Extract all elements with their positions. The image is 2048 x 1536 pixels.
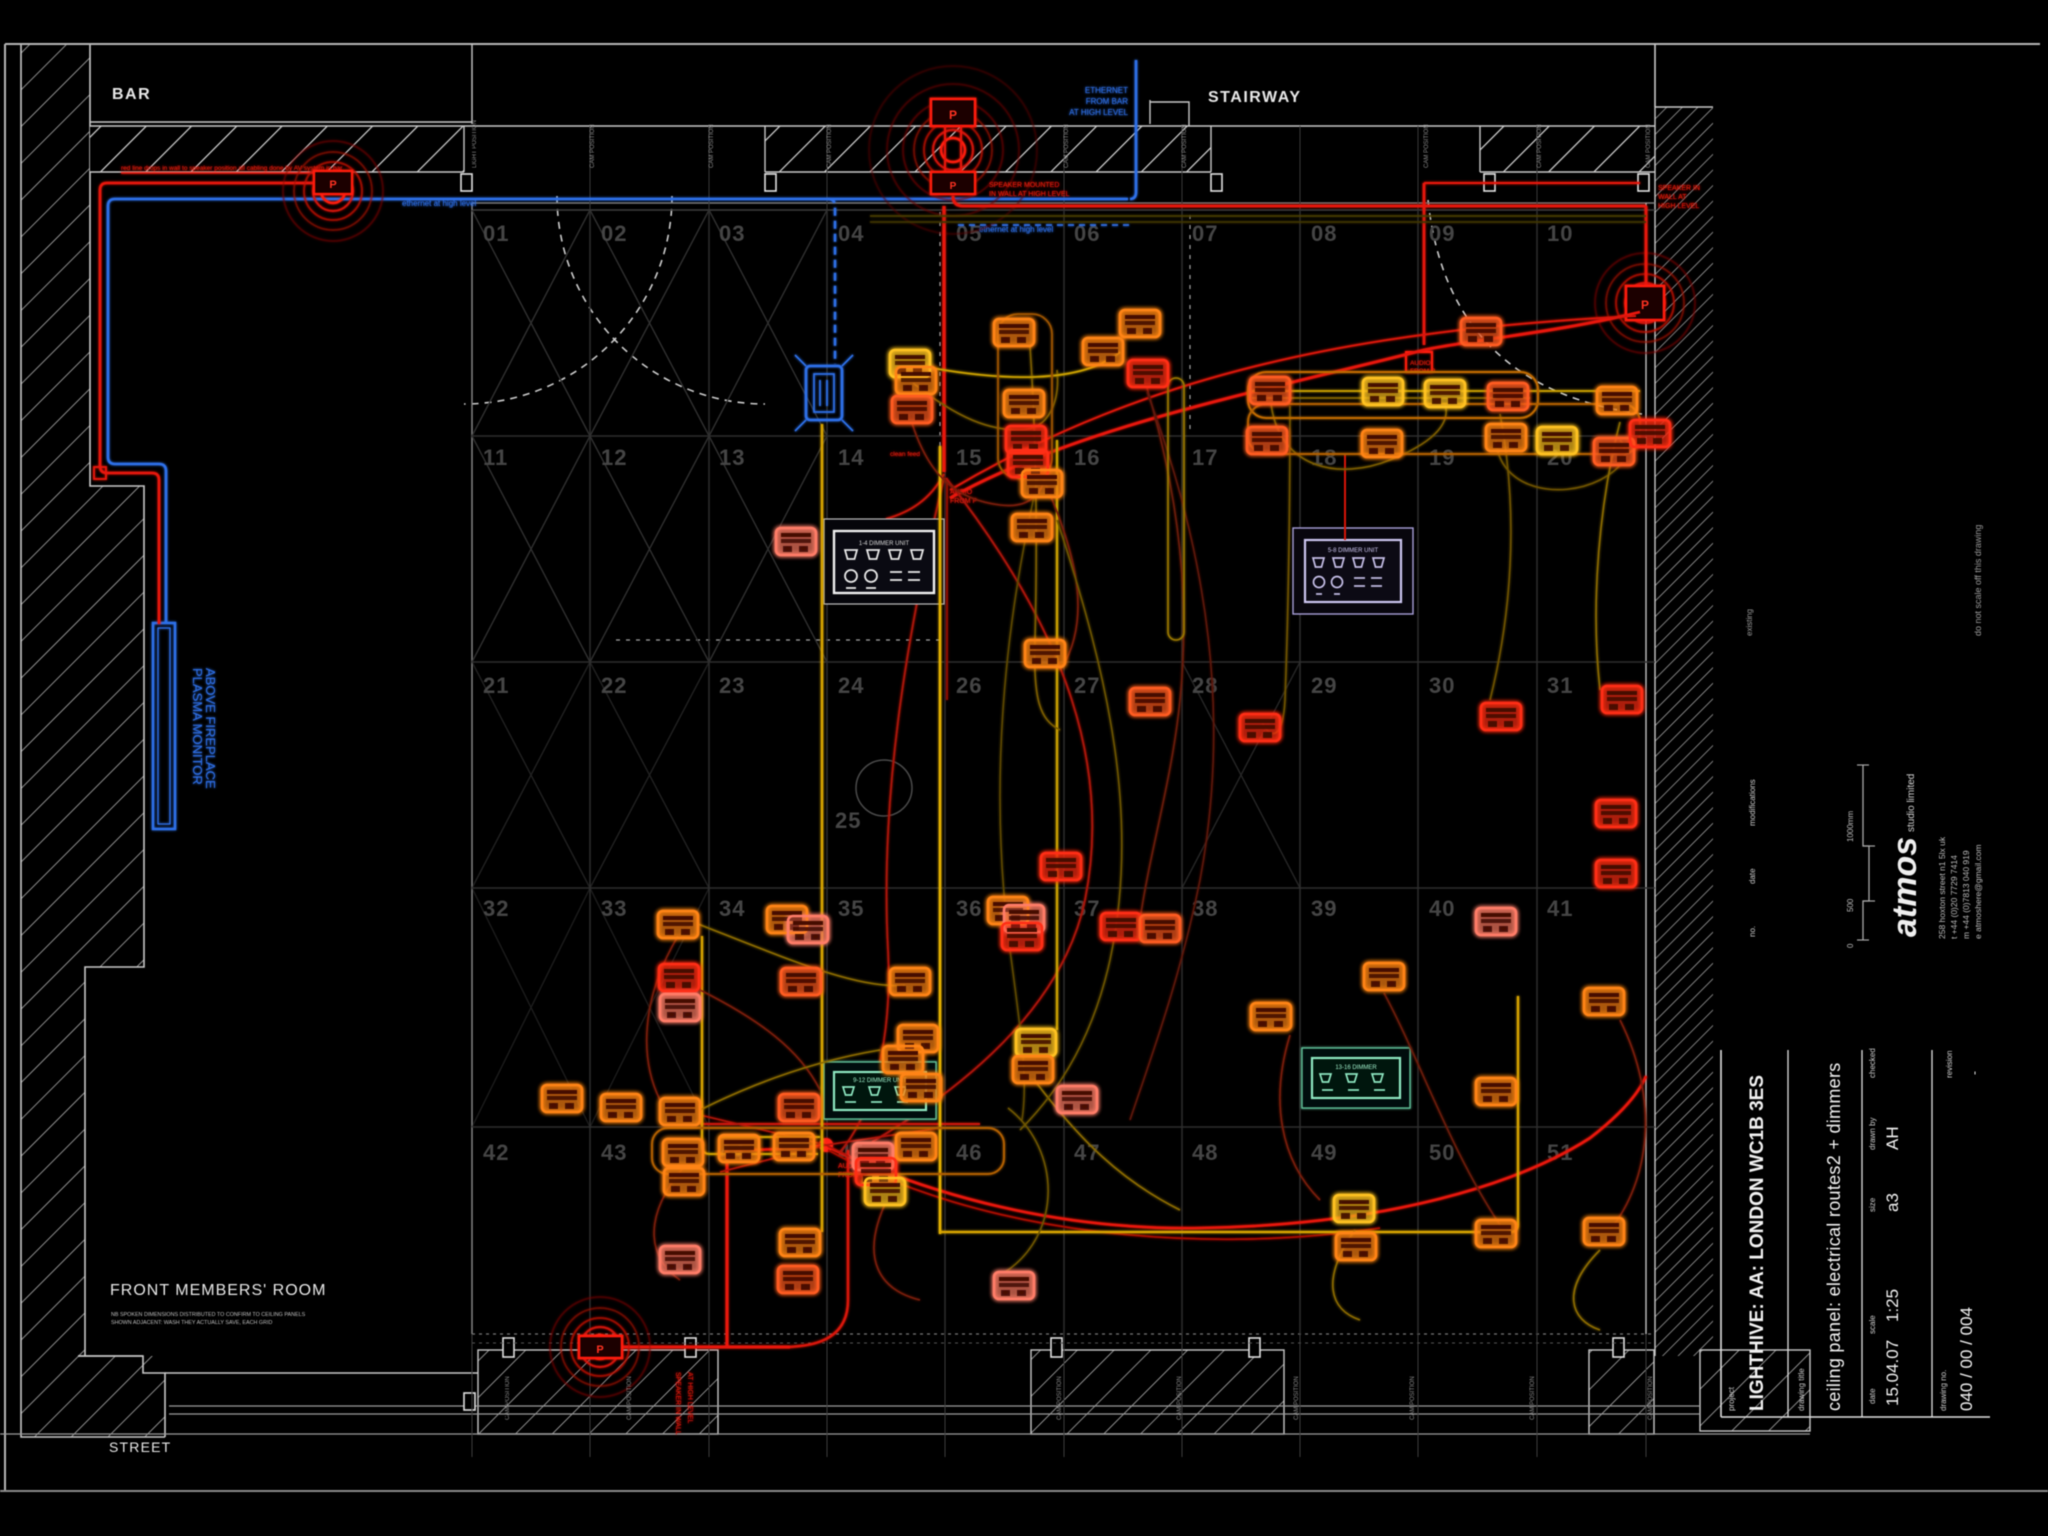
svg-text:e atmoshere@gmail.com: e atmoshere@gmail.com xyxy=(1973,844,1983,939)
svg-text:25: 25 xyxy=(835,808,861,833)
svg-text:09: 09 xyxy=(1429,221,1455,246)
svg-text:no.: no. xyxy=(1748,926,1757,937)
svg-text:m +44 (0)7813 040 919: m +44 (0)7813 040 919 xyxy=(1961,850,1971,939)
svg-text:SPEAKER MOUNTED: SPEAKER MOUNTED xyxy=(989,182,1059,189)
svg-text:CAM POSITION: CAM POSITION xyxy=(1424,124,1430,168)
svg-text:1-4 DIMMER UNIT: 1-4 DIMMER UNIT xyxy=(859,541,910,547)
svg-text:LIGHT POSITION: LIGHT POSITION xyxy=(472,120,478,168)
svg-text:HIGH LEVEL: HIGH LEVEL xyxy=(1658,203,1699,210)
svg-text:CAM POSITION: CAM POSITION xyxy=(1530,1376,1536,1420)
svg-text:10: 10 xyxy=(1547,221,1573,246)
svg-text:STREET: STREET xyxy=(109,1439,171,1455)
svg-text:CAM POSITION: CAM POSITION xyxy=(1064,124,1070,168)
svg-text:CAM POSITION: CAM POSITION xyxy=(709,124,715,168)
svg-text:revision: revision xyxy=(1945,1050,1954,1078)
svg-text:t +44 (0)20 7729 7414: t +44 (0)20 7729 7414 xyxy=(1949,855,1959,939)
svg-text:FROM BAR: FROM BAR xyxy=(1086,97,1128,106)
svg-text:37: 37 xyxy=(1074,896,1100,921)
svg-text:46: 46 xyxy=(956,1140,982,1165)
svg-text:project: project xyxy=(1727,1386,1736,1411)
svg-text:CAM POSITION: CAM POSITION xyxy=(827,124,833,168)
svg-text:43: 43 xyxy=(601,1140,627,1165)
svg-text:atmos: atmos xyxy=(1886,837,1924,937)
svg-text:ceiling panel: electrical rout: ceiling panel: electrical routes2 + dimm… xyxy=(1824,1062,1844,1411)
svg-text:14: 14 xyxy=(838,445,864,470)
svg-text:IN WALL AT HIGH LEVEL: IN WALL AT HIGH LEVEL xyxy=(989,191,1070,198)
svg-text:48: 48 xyxy=(1192,1140,1218,1165)
svg-text:ETHERNET: ETHERNET xyxy=(1085,86,1128,95)
svg-text:21: 21 xyxy=(483,673,509,698)
svg-text:33: 33 xyxy=(601,896,627,921)
svg-text:drawing title: drawing title xyxy=(1797,1368,1806,1411)
svg-text:FRONT MEMBERS' ROOM: FRONT MEMBERS' ROOM xyxy=(110,1282,326,1299)
svg-text:CAM POSITION: CAM POSITION xyxy=(1294,1376,1300,1420)
svg-text:CAM POSITION: CAM POSITION xyxy=(1537,124,1543,168)
svg-text:ethernet at high level: ethernet at high level xyxy=(402,199,476,208)
svg-text:checked: checked xyxy=(1868,1048,1877,1078)
svg-text:existing: existing xyxy=(1745,609,1754,636)
svg-text:CAM POSITION: CAM POSITION xyxy=(1177,1376,1183,1420)
svg-text:22: 22 xyxy=(601,673,627,698)
svg-text:30: 30 xyxy=(1429,673,1455,698)
svg-text:040 / 00 / 004: 040 / 00 / 004 xyxy=(1957,1307,1976,1411)
svg-text:CAM POSITION: CAM POSITION xyxy=(1182,124,1188,168)
svg-text:15.04.07: 15.04.07 xyxy=(1883,1340,1902,1406)
svg-text:CAM POSITION: CAM POSITION xyxy=(590,124,596,168)
svg-text:5-8 DIMMER UNIT: 5-8 DIMMER UNIT xyxy=(1328,548,1379,554)
svg-text:STAIRWAY: STAIRWAY xyxy=(1208,89,1302,106)
svg-text:19: 19 xyxy=(1429,445,1455,470)
svg-text:size: size xyxy=(1868,1197,1877,1212)
svg-text:13-16 DIMMER: 13-16 DIMMER xyxy=(1335,1065,1377,1071)
svg-text:29: 29 xyxy=(1311,673,1337,698)
svg-text:1:25: 1:25 xyxy=(1883,1289,1902,1322)
svg-text:02: 02 xyxy=(601,221,627,246)
svg-text:a3: a3 xyxy=(1883,1193,1902,1212)
svg-text:1000mm: 1000mm xyxy=(1846,811,1855,842)
svg-text:CAM POSITION: CAM POSITION xyxy=(1646,124,1652,168)
svg-text:SPEAKER IN: SPEAKER IN xyxy=(1658,185,1700,192)
svg-text:35: 35 xyxy=(838,896,864,921)
svg-text:CAM POSITION: CAM POSITION xyxy=(1410,1376,1416,1420)
svg-text:07: 07 xyxy=(1192,221,1218,246)
svg-text:9-12 DIMMER UNIT: 9-12 DIMMER UNIT xyxy=(853,1078,907,1084)
svg-text:04: 04 xyxy=(838,221,864,246)
svg-text:clean feed: clean feed xyxy=(890,451,920,458)
svg-text:P: P xyxy=(1641,298,1649,312)
svg-text:scale: scale xyxy=(1868,1315,1877,1334)
svg-text:41: 41 xyxy=(1547,896,1573,921)
svg-text:AT HIGH LEVEL: AT HIGH LEVEL xyxy=(686,1372,693,1424)
svg-text:P: P xyxy=(949,108,957,122)
svg-text:drawing no.: drawing no. xyxy=(1939,1370,1948,1411)
svg-text:P: P xyxy=(950,181,957,192)
svg-text:CAM POSITION: CAM POSITION xyxy=(1057,1376,1063,1420)
svg-text:PLASMA MONITOR: PLASMA MONITOR xyxy=(190,668,205,785)
svg-text:-: - xyxy=(1967,1071,1981,1075)
svg-text:01: 01 xyxy=(483,221,509,246)
svg-text:13: 13 xyxy=(719,445,745,470)
svg-text:11: 11 xyxy=(483,445,508,470)
svg-text:do not scale off this drawing: do not scale off this drawing xyxy=(1973,525,1983,636)
svg-text:date: date xyxy=(1748,868,1757,884)
svg-text:drawn by: drawn by xyxy=(1868,1118,1877,1150)
svg-text:LIGHTHIVE: AA: LONDON WC1B 3ES: LIGHTHIVE: AA: LONDON WC1B 3ES xyxy=(1747,1075,1768,1411)
svg-text:ABOVE FIREPLACE: ABOVE FIREPLACE xyxy=(203,668,218,789)
svg-text:modifications: modifications xyxy=(1748,779,1757,826)
svg-text:AH: AH xyxy=(1883,1126,1902,1150)
svg-text:36: 36 xyxy=(956,896,982,921)
svg-text:40: 40 xyxy=(1429,896,1455,921)
svg-text:39: 39 xyxy=(1311,896,1337,921)
svg-text:03: 03 xyxy=(719,221,745,246)
svg-text:12: 12 xyxy=(601,445,627,470)
svg-text:06: 06 xyxy=(1074,221,1100,246)
svg-text:32: 32 xyxy=(483,896,509,921)
svg-text:28: 28 xyxy=(1192,673,1218,698)
svg-text:studio limited: studio limited xyxy=(1906,774,1917,832)
svg-text:15: 15 xyxy=(956,445,982,470)
svg-text:34: 34 xyxy=(719,896,745,921)
svg-text:CAM POSITION: CAM POSITION xyxy=(1648,1376,1654,1420)
svg-text:BAR: BAR xyxy=(112,86,151,103)
svg-text:08: 08 xyxy=(1311,221,1337,246)
svg-text:258 hoxton street n1 5lx uk: 258 hoxton street n1 5lx uk xyxy=(1937,836,1947,939)
svg-text:23: 23 xyxy=(719,673,745,698)
svg-text:31: 31 xyxy=(1547,673,1573,698)
svg-text:CAM POSITION: CAM POSITION xyxy=(505,1376,511,1420)
svg-text:26: 26 xyxy=(956,673,982,698)
svg-text:16: 16 xyxy=(1074,445,1100,470)
svg-text:27: 27 xyxy=(1074,673,1100,698)
svg-text:17: 17 xyxy=(1192,445,1218,470)
svg-text:51: 51 xyxy=(1547,1140,1573,1165)
svg-text:WALL AT: WALL AT xyxy=(1658,194,1687,201)
svg-text:500: 500 xyxy=(1846,898,1855,912)
svg-text:SPEAKER IN WALL: SPEAKER IN WALL xyxy=(674,1372,681,1435)
svg-text:AT HIGH LEVEL: AT HIGH LEVEL xyxy=(1069,108,1128,117)
svg-text:date: date xyxy=(1868,1388,1877,1404)
svg-text:SHOWN ADJACENT: WASH THEY ACTU: SHOWN ADJACENT: WASH THEY ACTUALLY SAVE,… xyxy=(111,1320,272,1326)
svg-text:P: P xyxy=(596,1344,603,1356)
svg-text:P: P xyxy=(329,179,336,191)
svg-text:red line drops in wall to spea: red line drops in wall to speaker positi… xyxy=(121,165,343,172)
svg-text:47: 47 xyxy=(1074,1140,1100,1165)
svg-text:NB SPOKEN DIMENSIONS DISTRIBUT: NB SPOKEN DIMENSIONS DISTRIBUTED TO CONF… xyxy=(111,1312,306,1318)
svg-text:42: 42 xyxy=(483,1140,509,1165)
svg-text:50: 50 xyxy=(1429,1140,1455,1165)
svg-text:AUDIO: AUDIO xyxy=(1410,360,1431,367)
svg-text:CAM POSITION: CAM POSITION xyxy=(627,1376,633,1420)
svg-text:49: 49 xyxy=(1311,1140,1337,1165)
svg-text:24: 24 xyxy=(838,673,864,698)
svg-text:0: 0 xyxy=(1846,943,1855,948)
